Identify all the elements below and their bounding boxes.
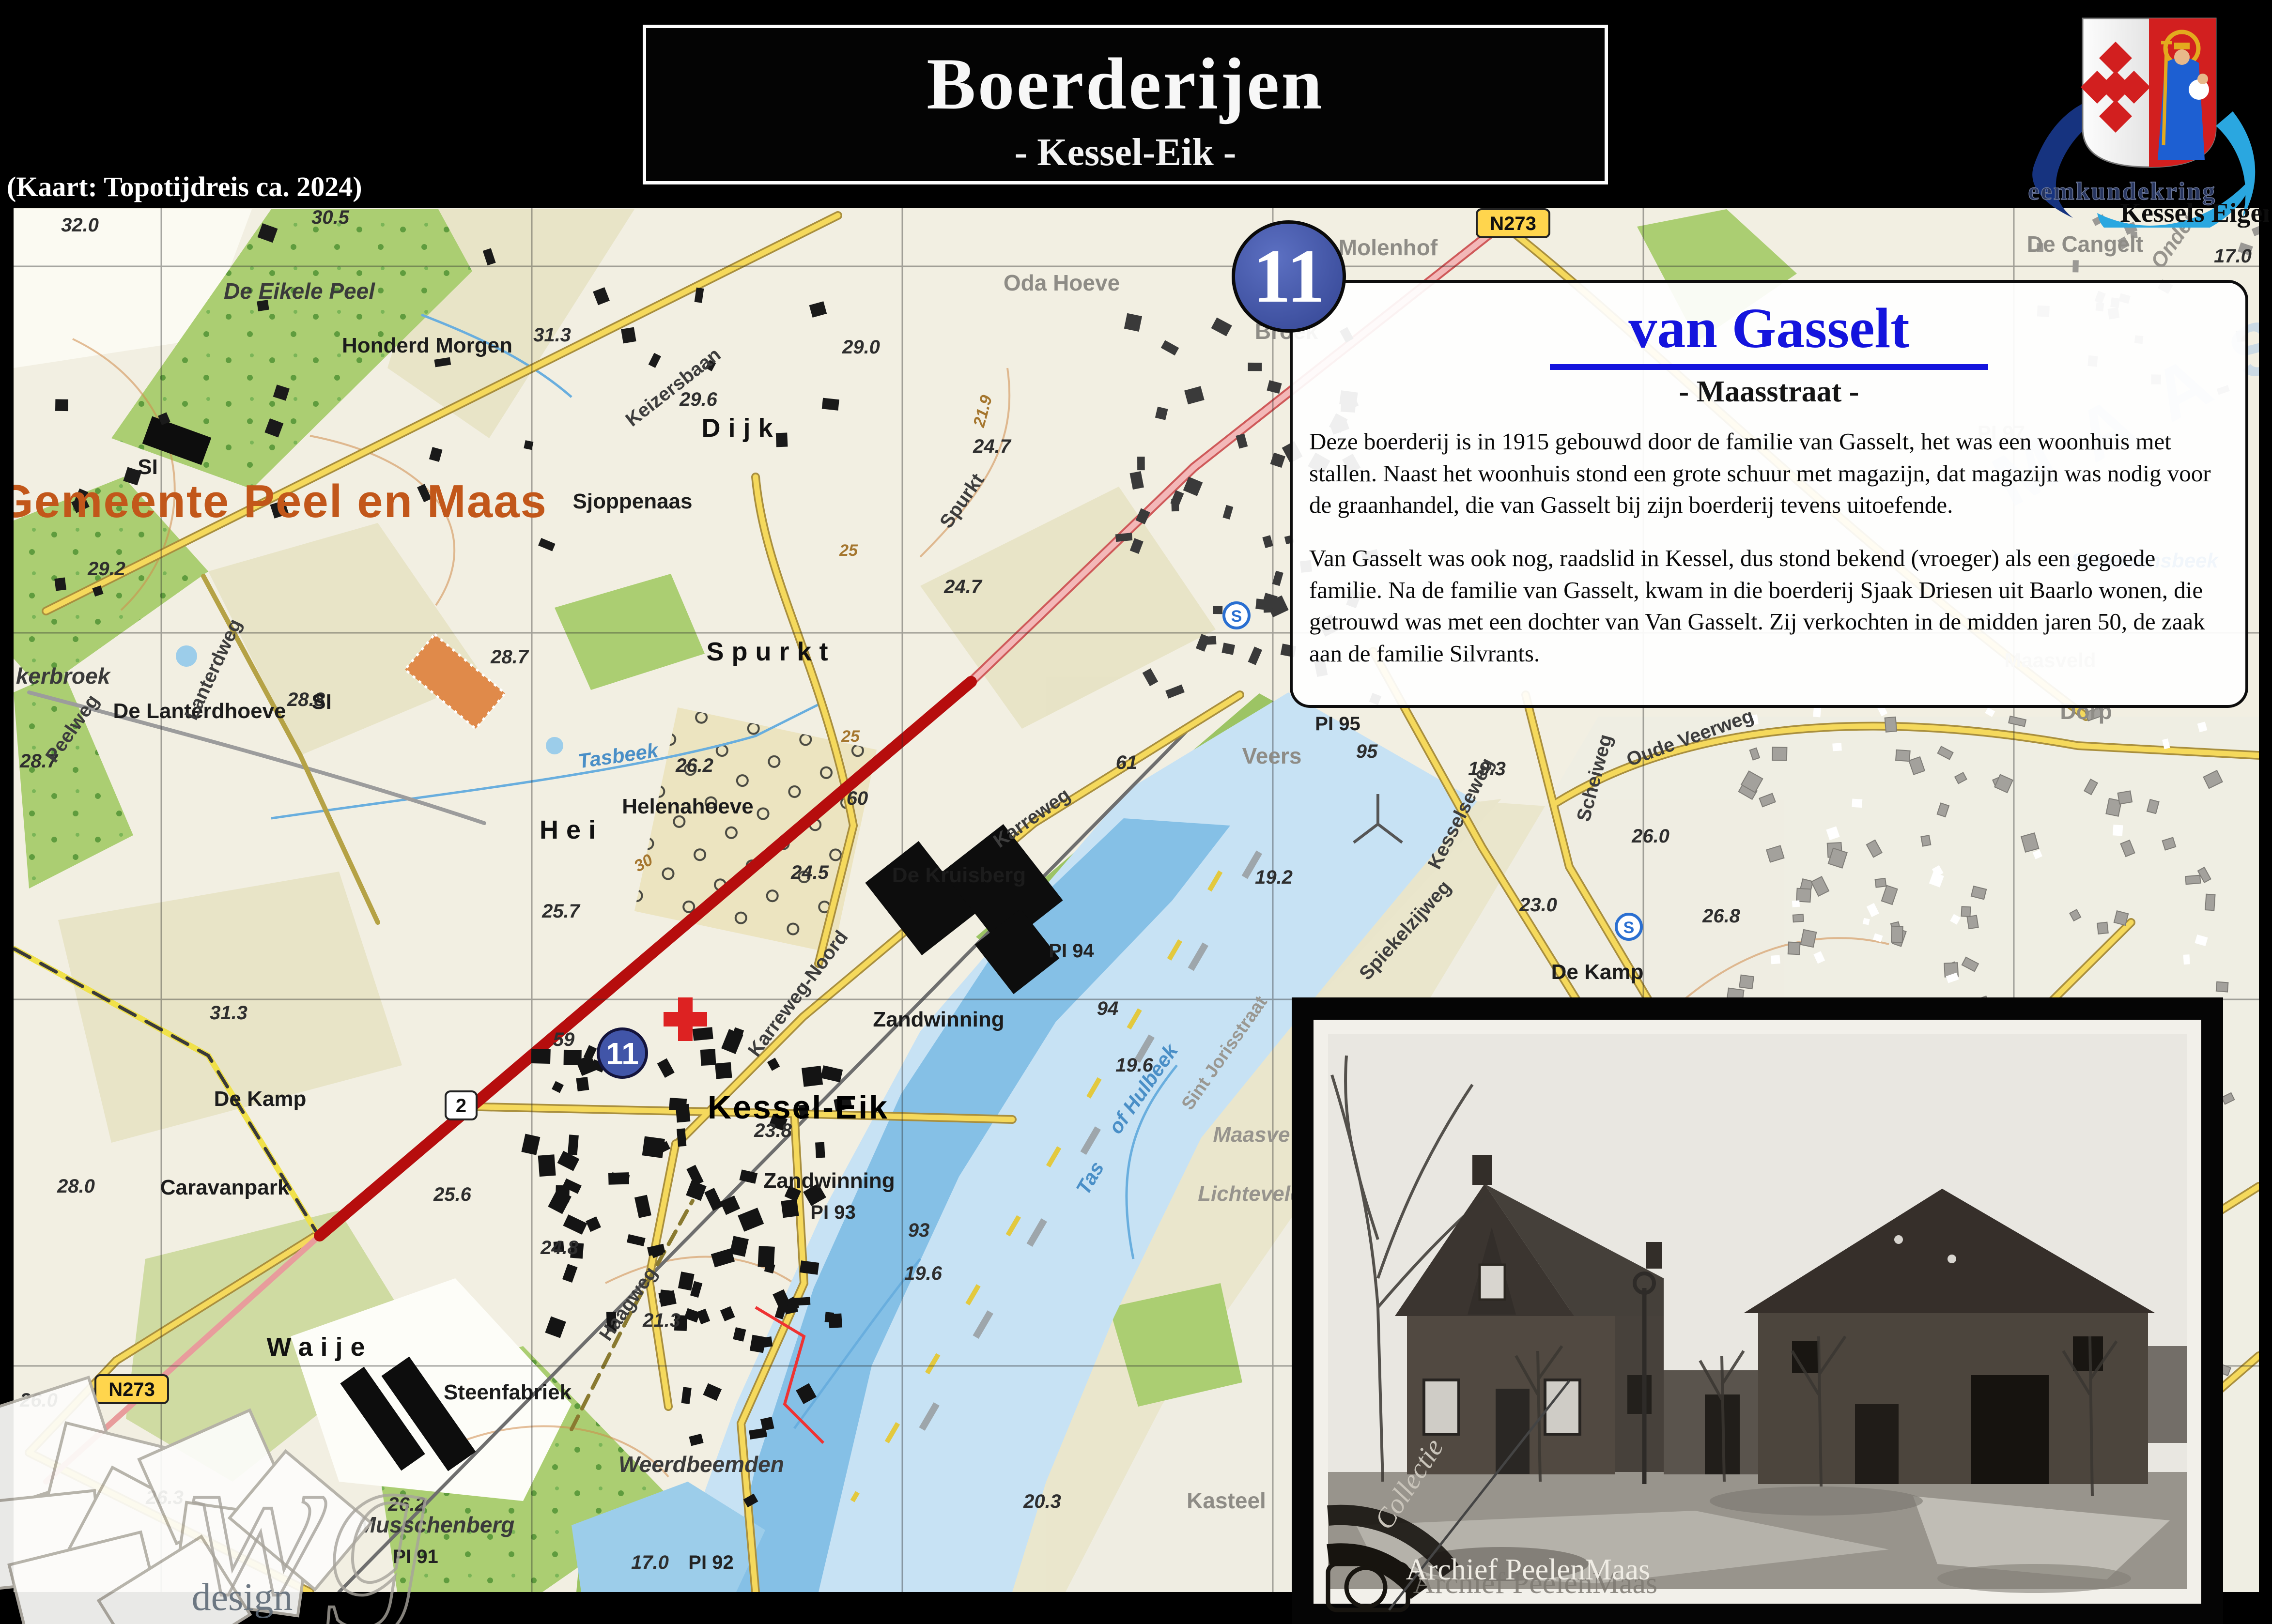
map-label: 17.0 [2214,245,2252,267]
map-label: 30.5 [311,208,350,228]
map-label: 28.7 [490,646,529,668]
map-label: Zandwinning [873,1008,1004,1031]
map-label: 23.0 [1519,894,1557,916]
map-label: 32.0 [61,214,99,236]
map-label: 26.2 [675,755,713,776]
map-label: 94 [1097,998,1119,1019]
map-label: 59 [553,1029,575,1050]
map-label: Hei [540,815,603,844]
map-label: 93 [908,1220,930,1241]
street-subheading: - Maasstraat - [1293,375,2245,409]
historic-farm-photo: Collectie Archief PeelenMaas Archief Pee… [1292,997,2223,1624]
map-label: Honderd Morgen [342,334,512,357]
heemkundekring-logo: Heemkundekring Kessels Eigen [2027,10,2269,228]
map-credit: (Kaart: Topotijdreis ca. 2024) [7,170,362,203]
design-label: design [192,1576,293,1619]
map-marker-number: 11 [606,1036,639,1071]
map-label: 25 [839,541,858,560]
map-label: Gemeente Peel en Maas [14,475,547,527]
map-label: Maasve [1213,1123,1290,1147]
map-label: 60 [847,788,868,809]
heading-underline [1550,364,1988,370]
map-label: 25.7 [541,901,581,922]
map-label: 19.6 [904,1263,943,1284]
slide: S S N273N2732 32.030.531.329.629.024.724… [0,0,2272,1624]
map-label: 31.3 [210,1002,247,1024]
map-label: Molenhof [1339,235,1438,260]
map-label: Spurkt [706,637,835,666]
map-label: 24.7 [973,436,1012,457]
map-label: Veers [1242,743,1302,768]
map-label: Zandwinning [763,1169,895,1193]
title-box: Boerderijen - Kessel-Eik - [643,25,1608,184]
farm-name-heading: van Gasselt [1293,295,2245,361]
map-label: 28.0 [57,1176,95,1197]
svg-text:2: 2 [456,1095,466,1117]
photo-credit: Archief PeelenMaas [1406,1553,1650,1586]
road-shield: 2 [446,1091,477,1119]
map-label: 24.5 [790,862,829,883]
map-label: De Cangelt [2027,231,2143,257]
road-shield: N273 [1477,209,1549,237]
map-label: 29.0 [842,337,880,358]
map-label: 25 [841,727,860,746]
page-subtitle: - Kessel-Eik - [646,131,1605,175]
map-label: 29.6 [679,389,718,410]
design-watermark: wg design [0,1370,726,1624]
map-label: 24.8 [540,1237,579,1258]
svg-text:N273: N273 [1490,213,1536,234]
number-badge: 11 [1232,220,1346,333]
map-label: De Eikele Peel [224,278,375,304]
map-label: Oda Hoeve [1004,270,1120,295]
map-label: Caravanpark [160,1176,290,1199]
map-label: De Kamp [1551,960,1644,984]
map-label: PI 95 [1315,713,1360,735]
map-label: 25.6 [433,1184,472,1205]
map-label: Sjoppenaas [573,490,693,513]
map-label: 19.2 [1255,867,1293,888]
history-paragraph-1: Deze boerderij is in 1915 gebouwd door d… [1309,426,2229,521]
map-label: PI 94 [1049,940,1094,962]
logo-text-line2: Kessels Eigen [2120,198,2269,228]
map-label: 95 [1356,741,1378,762]
svg-text:S: S [1623,919,1635,937]
map-label: 20.3 [1023,1491,1061,1512]
map-label: Kessel-Eik [708,1089,889,1126]
map-label: Lichteveld [1198,1182,1304,1206]
map-label: 31.3 [533,324,571,346]
map-label: 21.3 [642,1310,680,1331]
map-label: PI 93 [810,1202,855,1223]
map-label: Dijk [701,414,780,443]
page-title: Boerderijen [646,42,1605,126]
map-label: Kasteel [1187,1488,1266,1513]
map-label: 61 [1116,752,1138,773]
map-label: 26.0 [1631,826,1669,847]
map-label: 29.2 [87,558,125,580]
map-label: 26.8 [1702,905,1741,927]
map-label: De Kamp [214,1087,307,1111]
map-label: De Kruisberg [892,863,1026,887]
coat-of-arms [2081,18,2216,167]
map-label: SI [311,690,332,714]
map-label: 24.7 [943,576,983,598]
svg-text:S: S [1231,607,1242,626]
badge-number: 11 [1252,232,1325,321]
photo-image [1328,1034,2187,1610]
info-box: van Gasselt - Maasstraat - Deze boerderi… [1290,280,2248,708]
map-marker-11: 11 [598,1029,647,1077]
map-label: kerbroek [16,663,111,689]
map-label: Helenahoeve [622,795,753,818]
map-label: Waije [266,1333,372,1362]
history-paragraph-2: Van Gasselt was ook nog, raadslid in Kes… [1309,542,2229,670]
